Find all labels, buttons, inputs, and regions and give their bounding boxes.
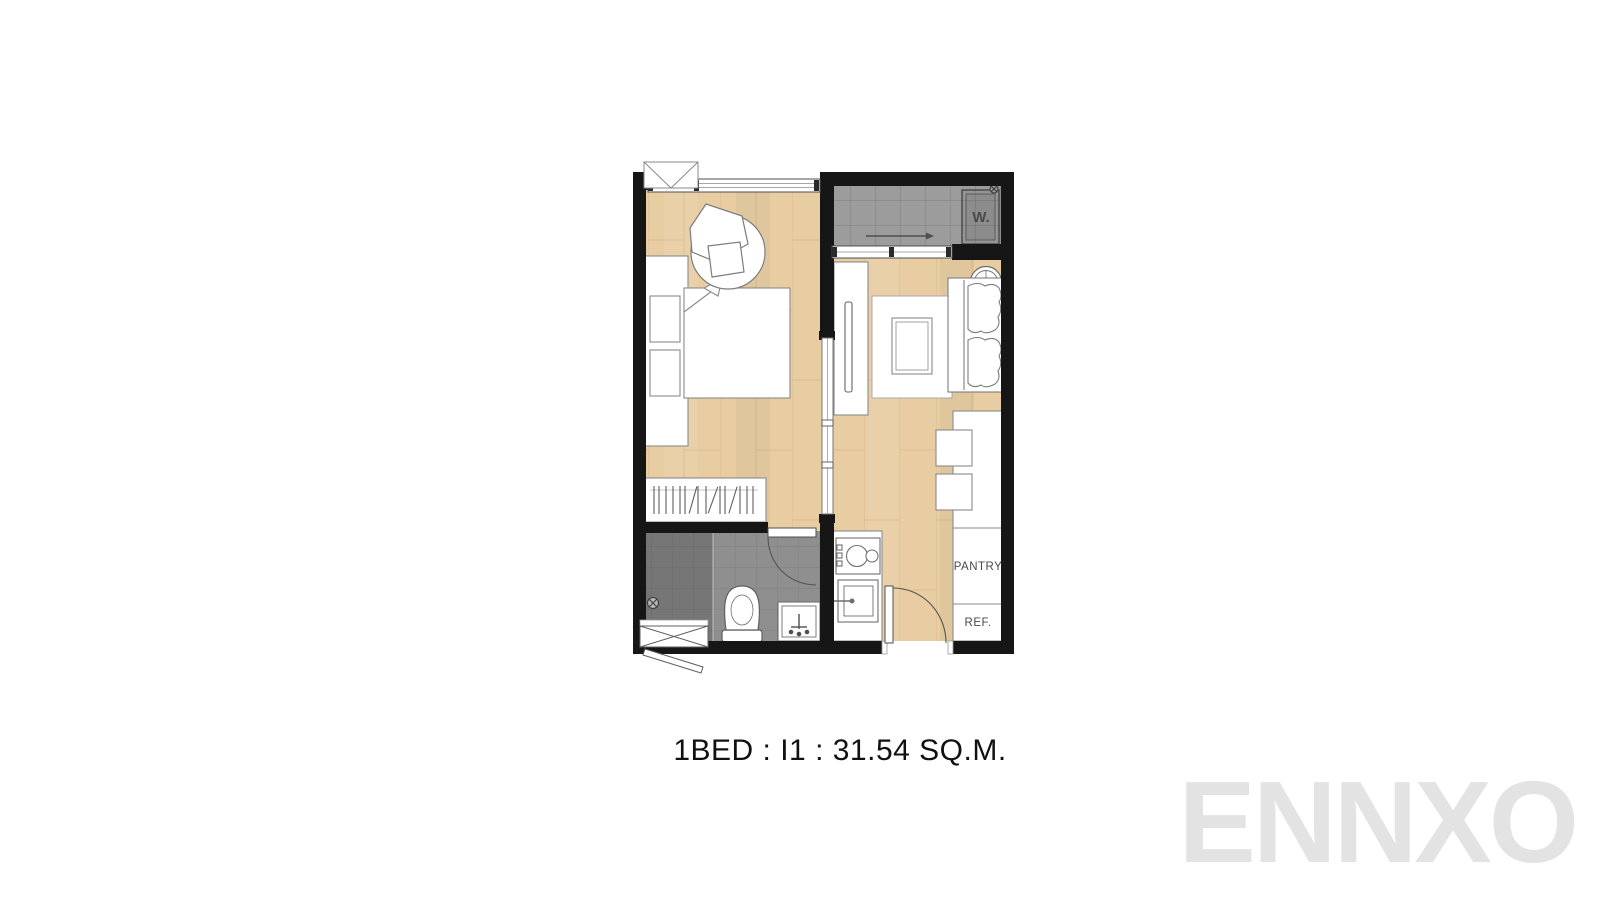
- bathroom-sink: [778, 602, 820, 641]
- toilet-tank: [722, 630, 762, 642]
- balcony-floor: [832, 184, 960, 248]
- balcony-sliding-door: [832, 246, 952, 258]
- balcony-drain: [990, 185, 998, 193]
- toilet: [722, 586, 762, 642]
- burner: [847, 546, 868, 567]
- refrigerator-label: REF.: [965, 617, 992, 629]
- ac-unit: [644, 162, 698, 188]
- bed-pillow: [650, 296, 680, 342]
- floor-pillow: [708, 242, 744, 277]
- bed-pillow: [650, 350, 680, 396]
- stool: [936, 474, 972, 510]
- coffee-table: [892, 318, 932, 374]
- stove: [836, 538, 880, 574]
- kitchen-sink: [834, 580, 878, 622]
- page: W. PANTRY REF. 1BED : I1 : 31.54 SQ.M. E…: [0, 0, 1600, 900]
- wardrobe: [644, 478, 766, 522]
- washer-label: W.: [972, 209, 990, 226]
- burner: [866, 550, 878, 562]
- mattress: [684, 288, 790, 398]
- bedroom-sliding-door: [822, 338, 833, 514]
- stool: [936, 430, 972, 466]
- plan-caption: 1BED : I1 : 31.54 SQ.M.: [560, 734, 1120, 768]
- watermark: ENNXO: [1178, 764, 1576, 880]
- bathroom-window: [640, 620, 708, 673]
- sofa: [948, 278, 1002, 392]
- toilet-bowl: [725, 586, 760, 630]
- tv-cabinet: [834, 262, 868, 415]
- floor-drain: [648, 598, 659, 609]
- tv: [845, 302, 852, 392]
- pantry-label: PANTRY: [954, 561, 1003, 573]
